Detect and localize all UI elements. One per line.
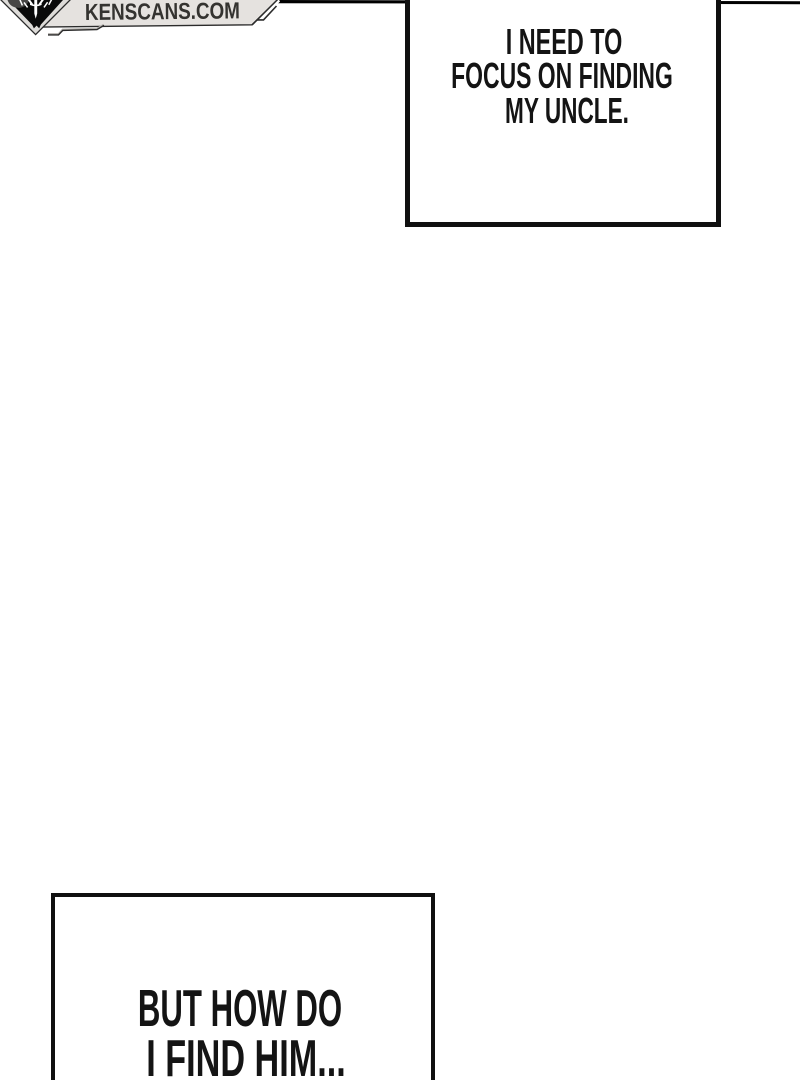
- svg-text:KENSCANS.COM: KENSCANS.COM: [85, 0, 240, 25]
